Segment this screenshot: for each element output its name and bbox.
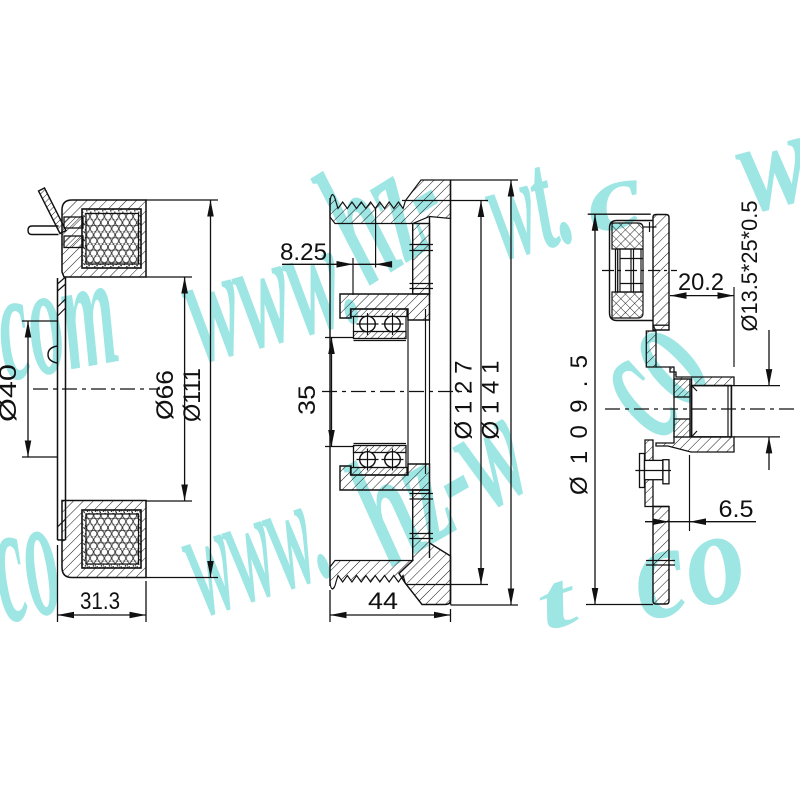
svg-text:Ø66: Ø66: [152, 370, 179, 420]
svg-text:8.25: 8.25: [280, 239, 327, 266]
svg-text:20.2: 20.2: [678, 269, 724, 296]
svg-text:www.: www.: [159, 438, 347, 650]
svg-text:t: t: [525, 554, 590, 648]
svg-text:31.3: 31.3: [80, 588, 120, 615]
svg-text:44: 44: [368, 588, 398, 615]
svg-text:6.5: 6.5: [719, 496, 754, 523]
svg-text:wt.: wt.: [468, 116, 586, 290]
svg-text:35: 35: [294, 385, 321, 415]
svg-text:Ø13.5*25*0.5: Ø13.5*25*0.5: [737, 201, 762, 332]
svg-text:Ø40: Ø40: [0, 364, 22, 422]
svg-text:Ø111: Ø111: [179, 368, 206, 422]
